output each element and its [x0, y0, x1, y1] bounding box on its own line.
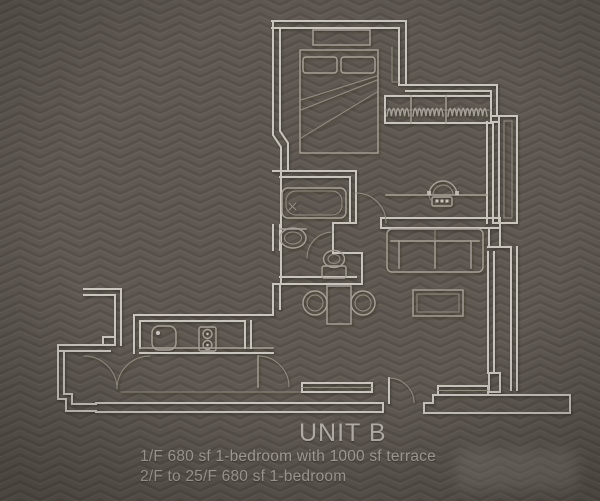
- unit-title: UNIT B: [299, 419, 387, 448]
- blurred-watermark: [456, 450, 578, 490]
- caption-line2: 2/F to 25/F 680 sf 1-bedroom: [140, 467, 346, 487]
- caption-line1: 1/F 680 sf 1-bedroom with 1000 sf terrac…: [140, 447, 436, 467]
- floorplan-screenshot: UNIT B 1/F 680 sf 1-bedroom with 1000 sf…: [0, 0, 600, 501]
